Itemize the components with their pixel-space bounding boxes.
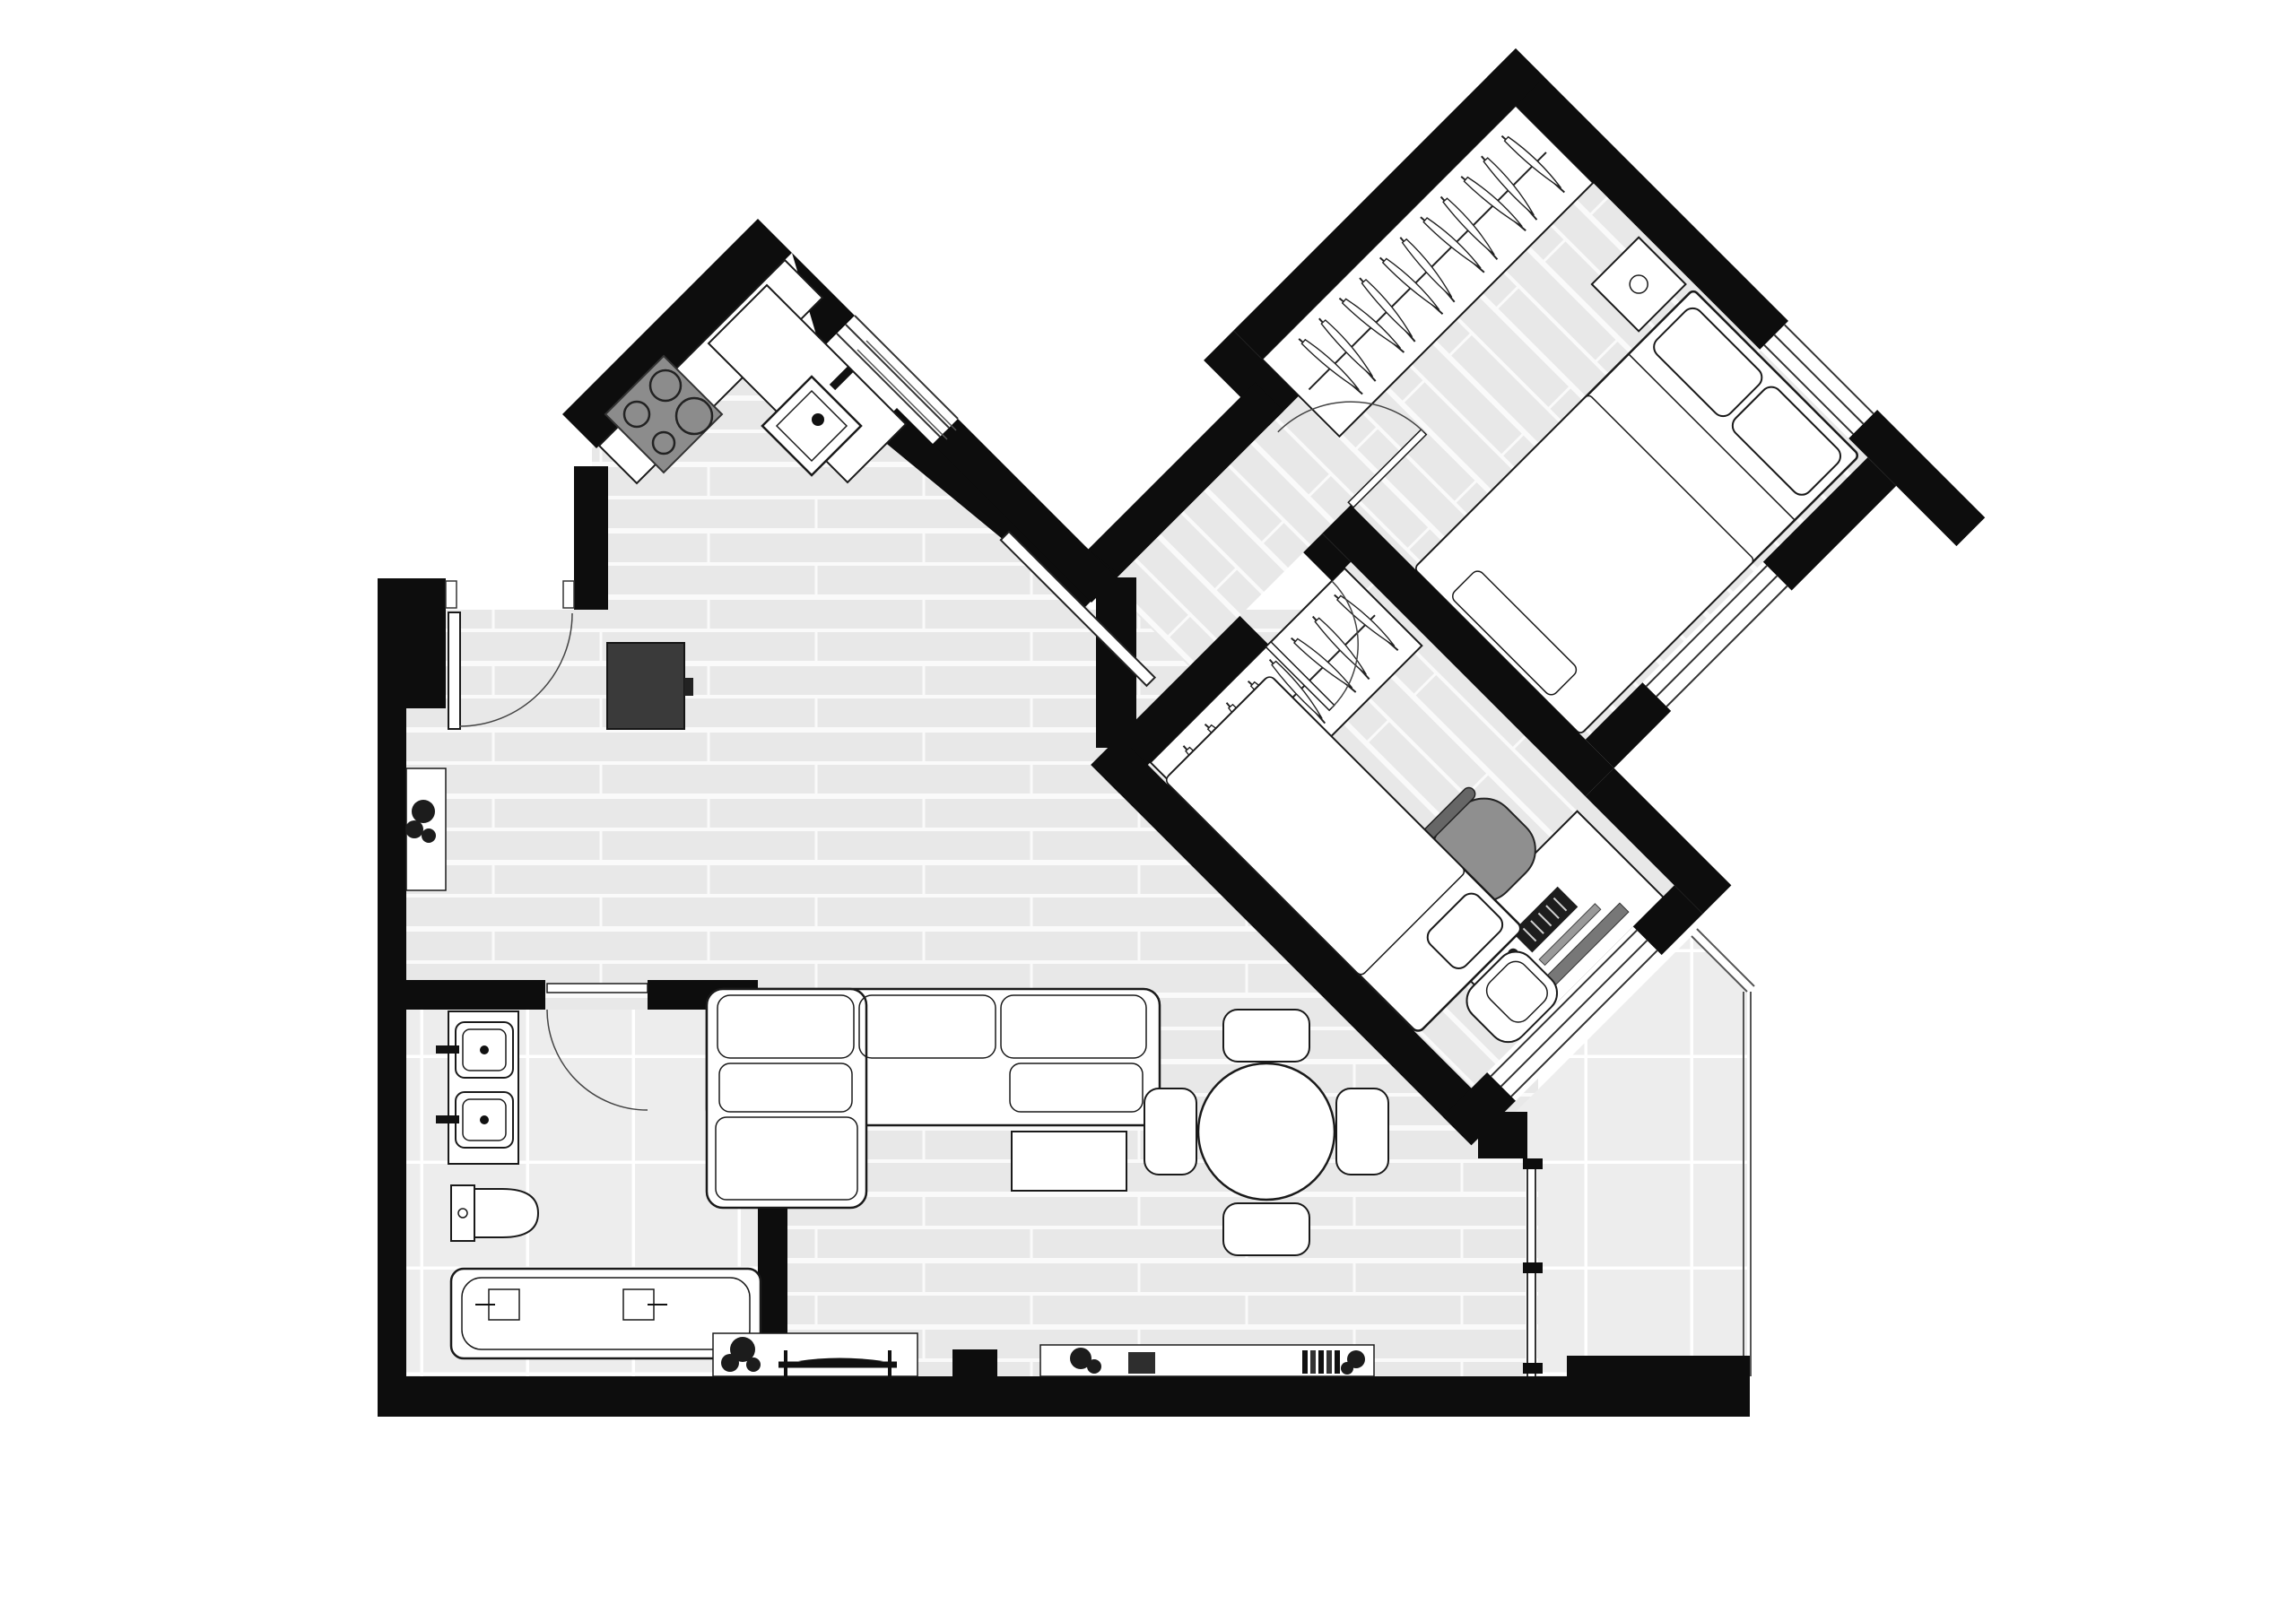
entry-console: [405, 768, 446, 890]
entry-side-wall: [574, 466, 608, 610]
coffee-table: [1012, 1132, 1126, 1191]
dining-chair: [1144, 1089, 1196, 1175]
pillow: [719, 1063, 852, 1112]
tv-console: [713, 1333, 918, 1379]
floor-plan-page: [0, 0, 2296, 1622]
dining-chair: [1336, 1089, 1388, 1175]
toilet: [451, 1185, 538, 1241]
faucet: [436, 1115, 459, 1123]
door-leaf: [547, 984, 648, 993]
vanity-double-sink: [436, 1011, 518, 1164]
entry-wall-block: [378, 578, 446, 708]
bathroom-wall-top-left: [406, 980, 545, 1010]
left-wall: [378, 708, 406, 1417]
dining-chair: [1223, 1010, 1309, 1062]
door-leaf: [448, 612, 460, 729]
floor-plan-svg: [0, 0, 2296, 1622]
faucet: [436, 1045, 459, 1054]
sideboard: [1040, 1345, 1374, 1376]
bottom-wall: [378, 1376, 1630, 1417]
fridge-tall-cabinet: [607, 643, 693, 729]
pillow: [1010, 1063, 1143, 1112]
box: [1128, 1352, 1155, 1374]
dining-table: [1198, 1063, 1335, 1200]
partition-post: [1478, 1112, 1527, 1158]
dining-chair: [1223, 1203, 1309, 1255]
